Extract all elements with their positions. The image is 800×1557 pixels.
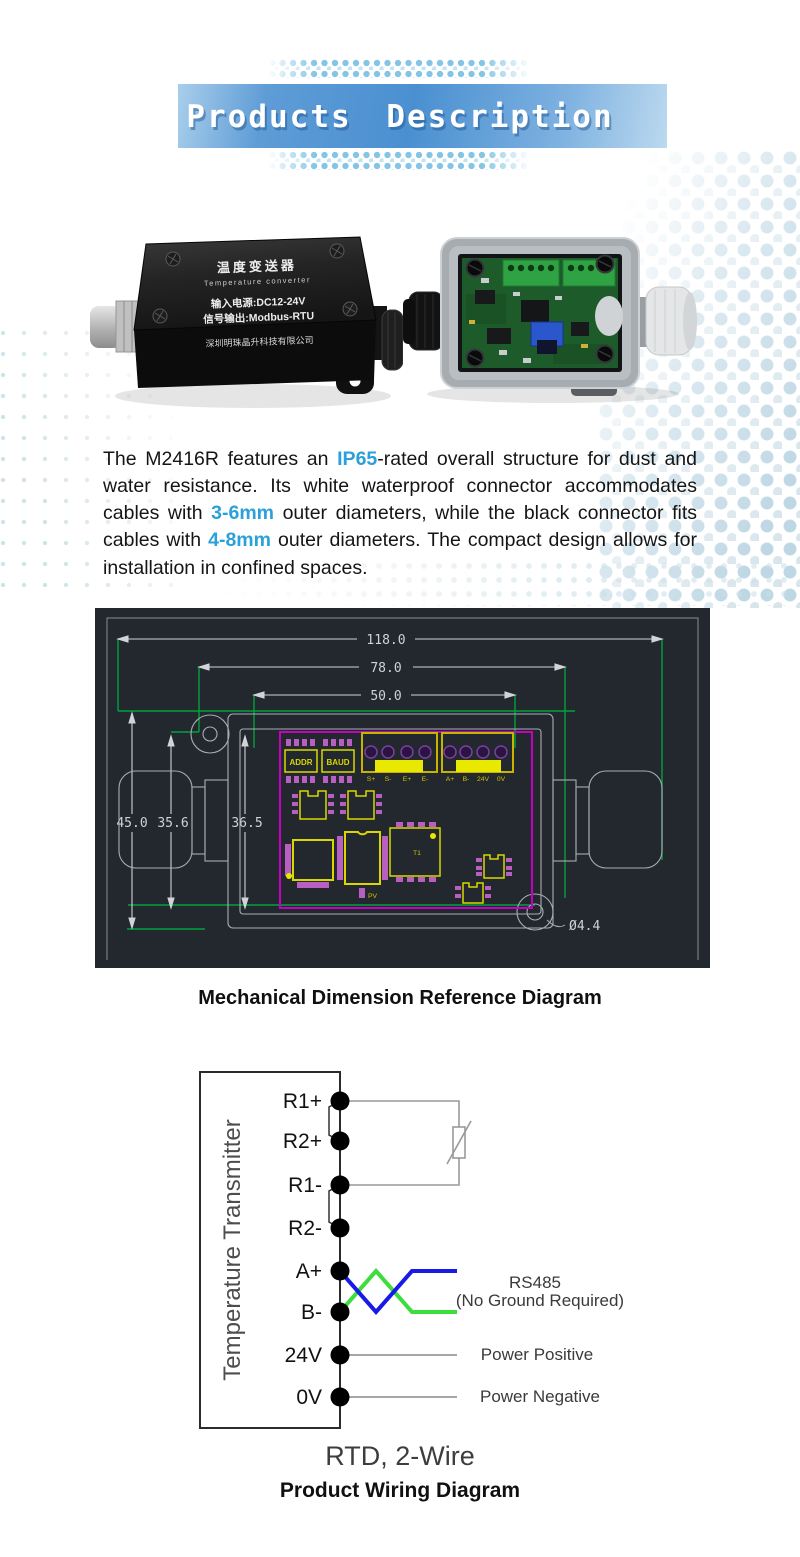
rs485-label: RS485 (509, 1273, 561, 1292)
mechanical-diagram-caption: Mechanical Dimension Reference Diagram (0, 987, 800, 1010)
pcb-terminal-label: B- (463, 776, 470, 783)
product-description-page: Products Description (0, 0, 800, 1557)
rtd-sensor-loop (340, 1101, 471, 1185)
section-title: Products Description (0, 88, 800, 146)
dim-overall-height: 45.0 (116, 816, 147, 831)
pcb-terminal-label: S- (385, 776, 392, 783)
pcb-terminal-label: 0V (497, 776, 506, 783)
description-text: The M2416R features an (103, 448, 337, 470)
ic-chip (475, 290, 495, 304)
dim-inner-height-left: 35.6 (157, 816, 188, 831)
dim-body-width: 78.0 (370, 661, 401, 676)
terminal-block (503, 260, 559, 286)
pv-label: PV (368, 893, 378, 900)
halftone-band-top (268, 59, 530, 78)
photo-right-product (403, 224, 703, 404)
terminal-dot (331, 1346, 350, 1365)
baud-switch-label: BAUD (326, 758, 349, 767)
halftone-band-bottom (268, 151, 530, 170)
dim-pcb-width: 50.0 (370, 689, 401, 704)
description-accent-text: IP65 (337, 448, 377, 470)
power-negative-label: Power Negative (480, 1387, 600, 1406)
description-accent-text: 3-6mm (211, 502, 274, 524)
gland-inner-cap (595, 296, 623, 336)
terminal-dot (331, 1303, 350, 1322)
terminal-label: 0V (296, 1386, 322, 1409)
dim-inner-height: 36.5 (231, 816, 262, 831)
product-wiring-diagram: Temperature Transmitter R1+R2+R1-R2-A+B-… (100, 1060, 700, 1460)
pcb-terminal-label: E+ (403, 776, 412, 783)
power-positive-label: Power Positive (481, 1345, 593, 1364)
terminal-dot (331, 1092, 350, 1111)
wiring-diagram-caption: Product Wiring Diagram (0, 1479, 800, 1503)
transmitter-box-label: Temperature Transmitter (219, 1119, 246, 1380)
terminal-dot (331, 1176, 350, 1195)
terminal-label: B- (301, 1301, 322, 1324)
rs485-note: (No Ground Required) (456, 1291, 624, 1310)
sensor-type-label: RTD, 2-Wire (0, 1441, 800, 1472)
terminal-label: R1+ (283, 1090, 322, 1113)
pcb-terminal-label: 24V (477, 776, 490, 783)
ic-chip (521, 300, 549, 322)
label-line-1: 温度变送器 (217, 258, 297, 276)
terminal-label: R2+ (283, 1130, 322, 1153)
rs485-wire-blue (340, 1271, 457, 1312)
addr-switch-label: ADDR (289, 758, 312, 767)
description-paragraph: The M2416R features an IP65-rated overal… (103, 446, 697, 582)
pcb-terminal-label: S+ (367, 776, 376, 783)
enclosure-front-face (134, 320, 376, 388)
terminal-label: R1- (288, 1174, 322, 1197)
terminal-dot (331, 1388, 350, 1407)
terminal-label: R2- (288, 1217, 322, 1240)
photo-left-product: 温度变送器 Temperature converter 输入电源:DC12-24… (88, 218, 403, 413)
pcb-terminal-label: A+ (446, 776, 455, 783)
mechanical-dimension-diagram: 118.0 78.0 50.0 45.0 35.6 36.5 Ø4.4 (95, 608, 710, 968)
terminal-dot (331, 1262, 350, 1281)
terminal-dot (331, 1132, 350, 1151)
terminal-label: 24V (285, 1344, 322, 1367)
dim-hole-diameter: Ø4.4 (569, 919, 600, 934)
ic-chip (571, 322, 589, 336)
pcb-terminal-label: E- (422, 776, 429, 783)
dim-overall-width: 118.0 (366, 633, 405, 648)
ic-chip (487, 328, 511, 344)
t1-label: T1 (413, 850, 421, 857)
terminal-label: A+ (296, 1260, 322, 1283)
terminal-dot (331, 1219, 350, 1238)
description-accent-text: 4-8mm (208, 529, 271, 551)
